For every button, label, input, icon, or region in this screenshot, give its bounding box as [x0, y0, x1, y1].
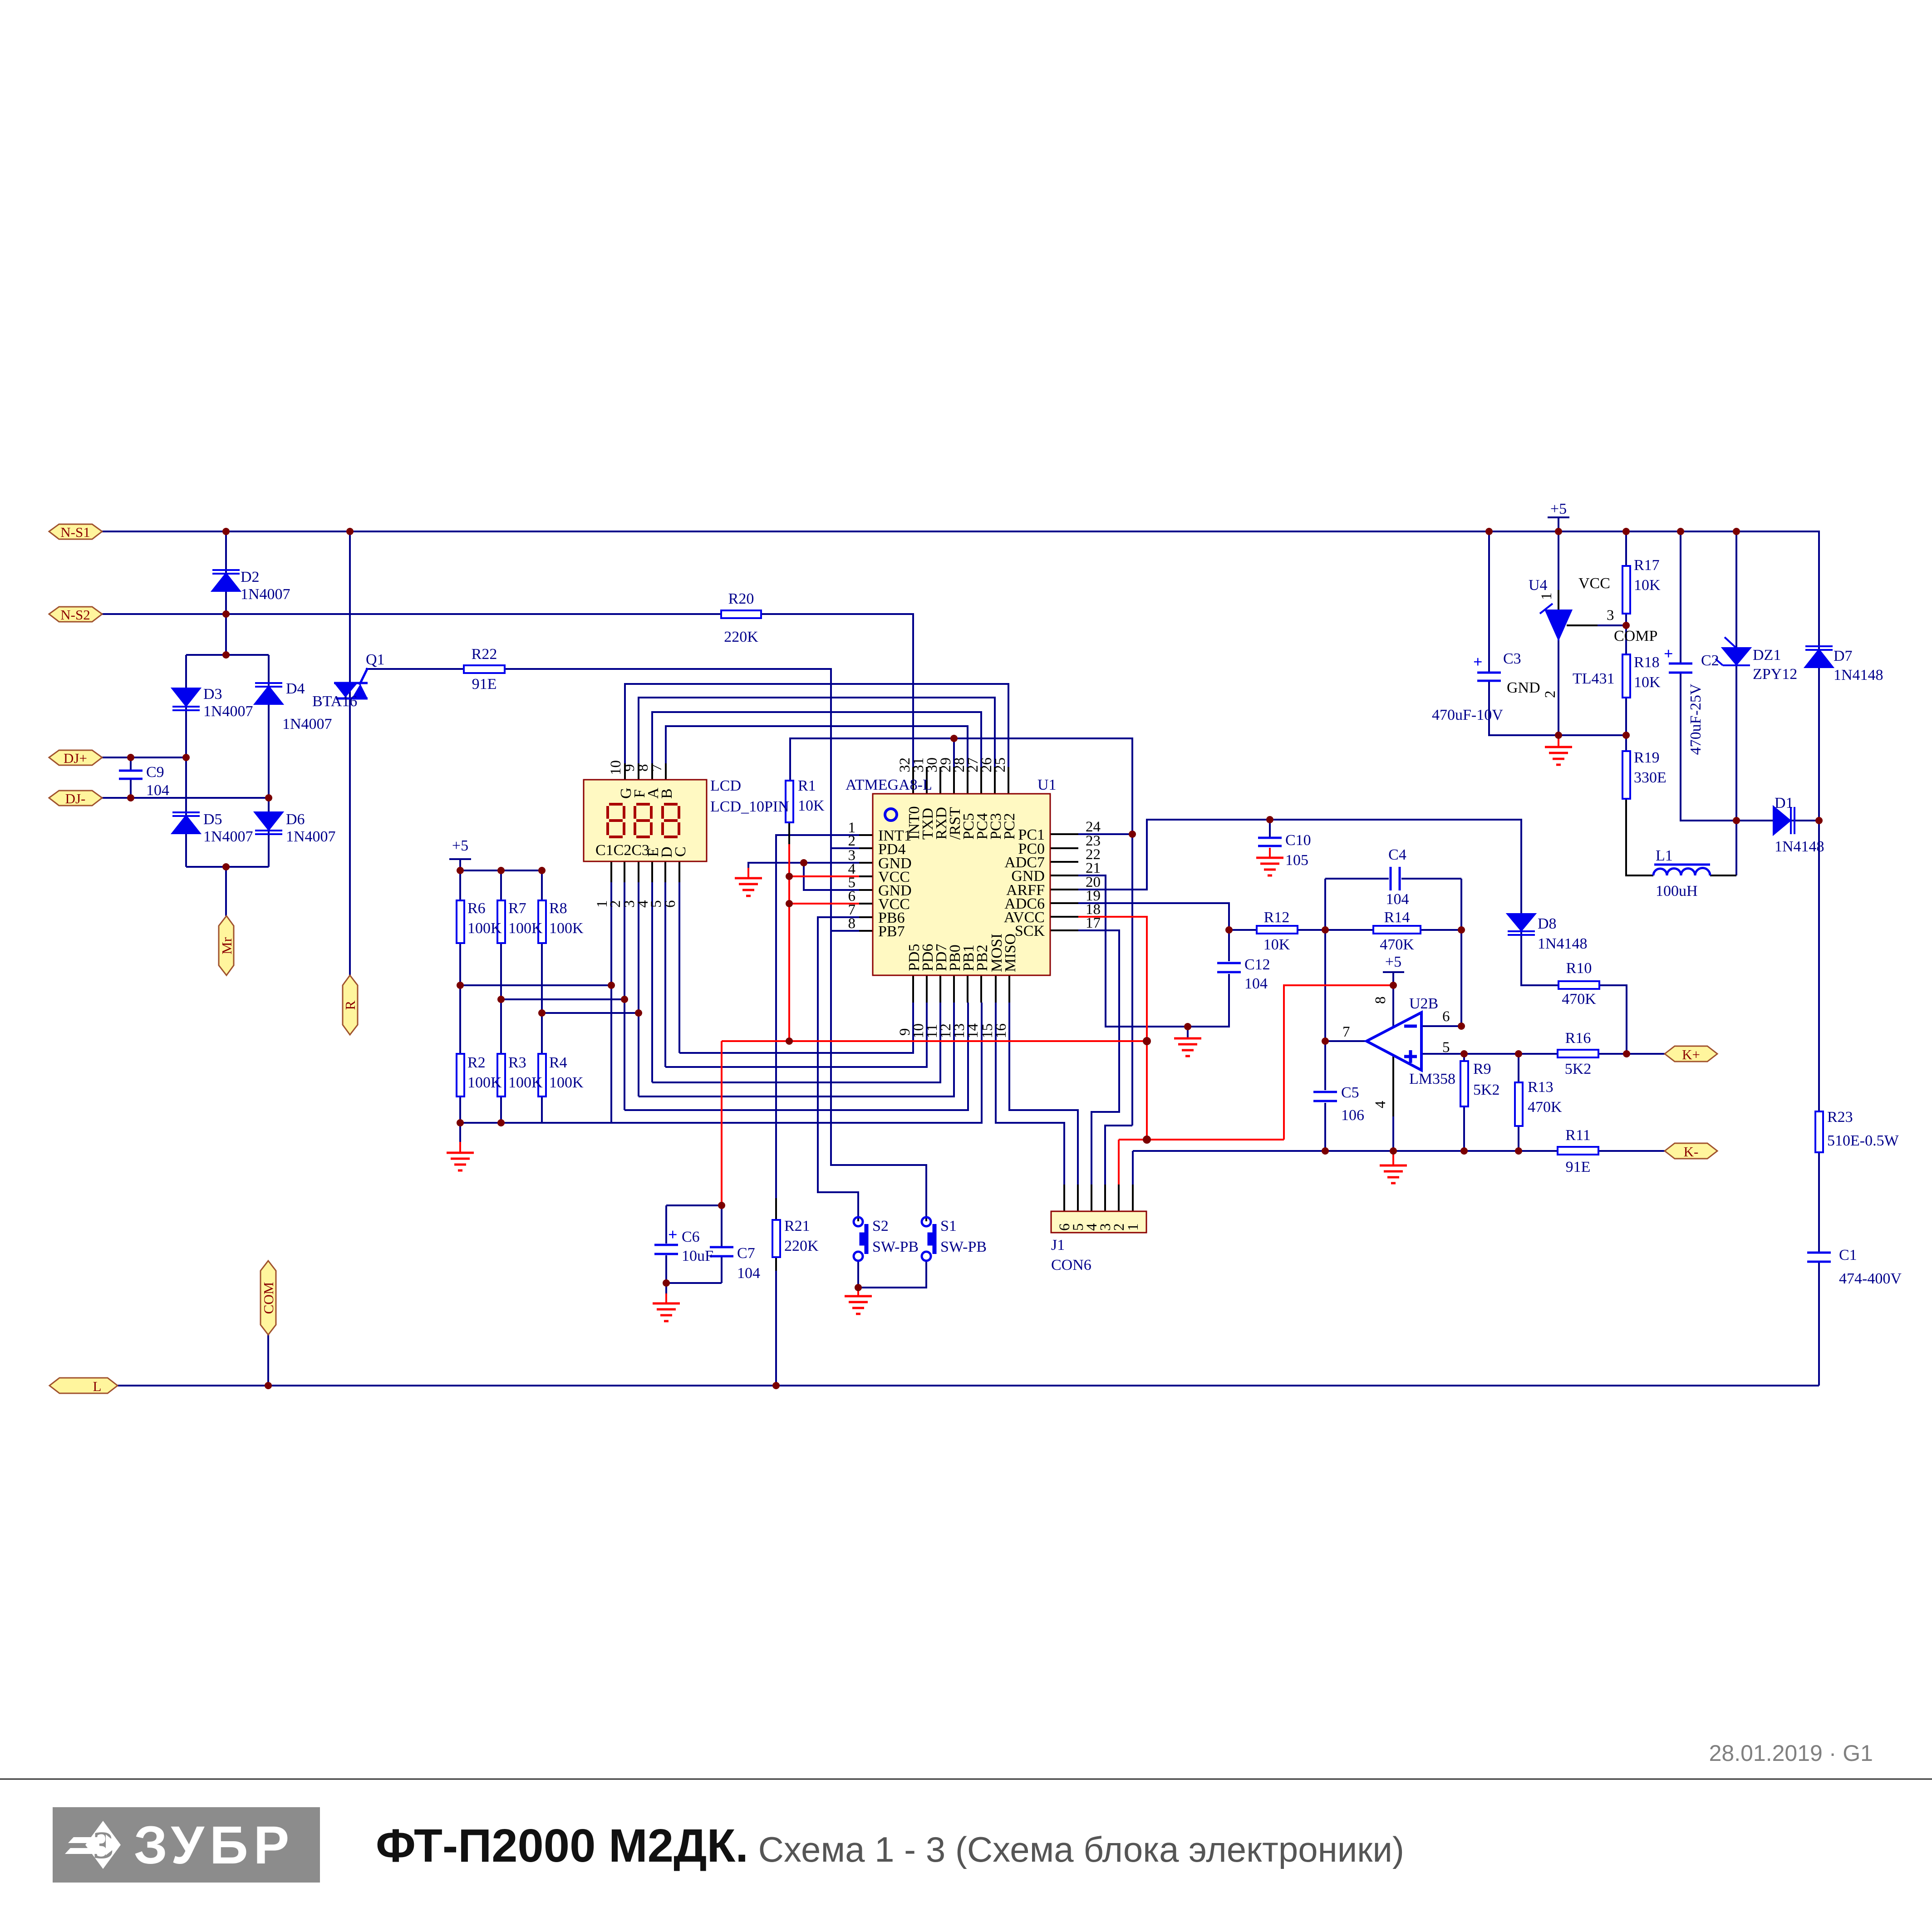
svg-text:R4: R4 [549, 1054, 567, 1071]
svg-text:1N4007: 1N4007 [282, 716, 332, 732]
svg-text:+5: +5 [1385, 954, 1401, 970]
svg-text:100K: 100K [467, 920, 502, 937]
svg-text:DJ+: DJ+ [64, 750, 87, 766]
svg-text:5K2: 5K2 [1473, 1082, 1500, 1098]
svg-text:1N4007: 1N4007 [203, 828, 253, 845]
svg-text:10K: 10K [1634, 577, 1661, 594]
svg-text:K-: K- [1684, 1144, 1699, 1160]
svg-text:104: 104 [737, 1265, 760, 1282]
svg-text:25: 25 [992, 757, 1008, 772]
svg-text:D4: D4 [286, 680, 305, 697]
svg-text:ЗУБР: ЗУБР [134, 1815, 295, 1875]
svg-text:PB7: PB7 [878, 923, 905, 940]
svg-text:470uF-25V: 470uF-25V [1687, 683, 1704, 755]
svg-text:8: 8 [1372, 997, 1389, 1004]
svg-text:R16: R16 [1565, 1030, 1591, 1047]
svg-text:Q1: Q1 [366, 651, 385, 668]
svg-text:N-S2: N-S2 [60, 607, 90, 623]
svg-text:3: 3 [1607, 607, 1614, 624]
svg-text:R2: R2 [467, 1054, 486, 1071]
svg-text:106: 106 [1341, 1107, 1364, 1124]
svg-text:D1: D1 [1775, 795, 1794, 811]
svg-text:R12: R12 [1264, 909, 1290, 926]
svg-text:470K: 470K [1528, 1099, 1562, 1116]
svg-text:510E-0.5W: 510E-0.5W [1827, 1132, 1899, 1149]
svg-text:+: + [1664, 644, 1673, 663]
svg-text:R14: R14 [1384, 909, 1410, 926]
svg-text:100K: 100K [549, 1074, 584, 1091]
svg-text:91E: 91E [1566, 1159, 1591, 1175]
svg-text:100K: 100K [508, 920, 543, 937]
svg-text:5: 5 [1442, 1039, 1450, 1056]
svg-text:L1: L1 [1656, 847, 1673, 864]
svg-text:C6: C6 [682, 1229, 700, 1245]
svg-text:10K: 10K [1263, 936, 1290, 953]
svg-text:2: 2 [1542, 691, 1558, 698]
svg-text:105: 105 [1285, 852, 1308, 869]
svg-text:470uF-10V: 470uF-10V [1432, 707, 1503, 723]
svg-text:D5: D5 [203, 811, 222, 828]
svg-text:BTA16: BTA16 [312, 693, 357, 710]
svg-text:C10: C10 [1285, 832, 1311, 849]
svg-text:R9: R9 [1473, 1061, 1491, 1077]
svg-text:C1: C1 [1839, 1247, 1857, 1263]
svg-text:10K: 10K [1634, 674, 1661, 691]
svg-text:104: 104 [146, 782, 169, 799]
svg-text:S1: S1 [940, 1218, 957, 1234]
svg-text:C3: C3 [1503, 650, 1521, 667]
svg-text:100K: 100K [467, 1074, 502, 1091]
svg-text:U2B: U2B [1409, 995, 1438, 1012]
svg-text:B: B [659, 788, 675, 799]
svg-text:220K: 220K [724, 629, 758, 645]
svg-text:D8: D8 [1538, 915, 1557, 932]
svg-text:U4: U4 [1529, 577, 1548, 594]
svg-text:C12: C12 [1244, 956, 1270, 973]
svg-text:100K: 100K [549, 920, 584, 937]
svg-text:LCD: LCD [710, 777, 741, 794]
svg-text:1N4007: 1N4007 [203, 703, 253, 720]
svg-text:+: + [668, 1225, 678, 1244]
svg-text:7: 7 [1342, 1024, 1350, 1040]
svg-text:17: 17 [1086, 915, 1101, 931]
svg-text:COMP: COMP [1614, 628, 1657, 644]
svg-text:C5: C5 [1341, 1084, 1359, 1101]
svg-text:Mr: Mr [219, 937, 235, 954]
svg-text:+: + [1473, 653, 1483, 671]
svg-text:16: 16 [993, 1023, 1009, 1038]
svg-text:CON6: CON6 [1051, 1257, 1091, 1273]
svg-text:1N4007: 1N4007 [286, 828, 336, 845]
svg-text:N-S1: N-S1 [60, 524, 90, 540]
svg-text:1N4007: 1N4007 [241, 586, 290, 603]
svg-text:R17: R17 [1634, 557, 1660, 574]
svg-text:R21: R21 [784, 1218, 810, 1234]
svg-text:220K: 220K [784, 1238, 819, 1254]
svg-text:10K: 10K [798, 797, 825, 814]
svg-text:C9: C9 [146, 764, 164, 781]
svg-text:R8: R8 [549, 900, 567, 917]
svg-text:6: 6 [1442, 1008, 1450, 1025]
svg-text:TL431: TL431 [1573, 670, 1615, 687]
svg-text:PC2: PC2 [1001, 813, 1018, 840]
svg-text:1N4148: 1N4148 [1538, 935, 1588, 952]
svg-text:L: L [93, 1378, 102, 1394]
svg-text:104: 104 [1386, 891, 1409, 908]
svg-text:U1: U1 [1037, 777, 1057, 793]
svg-text:D2: D2 [241, 569, 260, 585]
svg-text:LCD_10PIN: LCD_10PIN [710, 798, 789, 815]
svg-text:14: 14 [965, 1023, 981, 1038]
svg-text:1: 1 [1539, 593, 1555, 600]
svg-text:100K: 100K [508, 1074, 543, 1091]
svg-text:R22: R22 [472, 646, 497, 663]
svg-text:7: 7 [649, 764, 665, 772]
svg-text:GND: GND [1507, 679, 1540, 696]
svg-text:1N4148: 1N4148 [1775, 838, 1824, 855]
svg-text:R23: R23 [1827, 1109, 1853, 1126]
svg-text:+5: +5 [452, 837, 468, 854]
svg-text:5K2: 5K2 [1565, 1061, 1592, 1077]
svg-text:474-400V: 474-400V [1839, 1270, 1902, 1287]
svg-text:R7: R7 [508, 900, 526, 917]
svg-text:1: 1 [1125, 1224, 1141, 1231]
svg-text:C4: C4 [1388, 846, 1406, 863]
svg-text:C: C [672, 846, 689, 857]
svg-text:28.01.2019 · G1: 28.01.2019 · G1 [1709, 1740, 1873, 1766]
svg-text:R3: R3 [508, 1054, 526, 1071]
svg-text:100uH: 100uH [1656, 883, 1698, 900]
svg-text:COM: COM [261, 1282, 276, 1314]
svg-text:6: 6 [662, 900, 678, 908]
svg-text:2: 2 [848, 833, 856, 849]
svg-text:SCK: SCK [1015, 923, 1045, 939]
svg-text:C1C2C3: C1C2C3 [595, 842, 649, 859]
svg-text:330E: 330E [1634, 769, 1667, 786]
svg-text:D6: D6 [286, 811, 305, 828]
svg-text:+5: +5 [1550, 501, 1567, 517]
svg-text:SW-PB: SW-PB [940, 1239, 987, 1255]
svg-text:4: 4 [1372, 1101, 1389, 1109]
svg-text:R18: R18 [1634, 654, 1660, 671]
svg-text:104: 104 [1244, 975, 1268, 992]
svg-text:10uF: 10uF [682, 1248, 713, 1264]
svg-text:R: R [342, 1000, 358, 1010]
svg-text:470K: 470K [1562, 991, 1596, 1008]
svg-text:LM358: LM358 [1409, 1071, 1455, 1087]
svg-text:R6: R6 [467, 900, 486, 917]
svg-text:D7: D7 [1834, 648, 1853, 664]
svg-text:R1: R1 [798, 777, 816, 794]
svg-text:S2: S2 [872, 1218, 889, 1234]
svg-text:C2: C2 [1701, 652, 1719, 669]
svg-text:DJ-: DJ- [65, 791, 86, 806]
svg-text:D3: D3 [203, 686, 222, 703]
svg-text:ZPY12: ZPY12 [1753, 666, 1797, 683]
svg-text:91E: 91E [472, 676, 497, 693]
svg-text:R10: R10 [1566, 960, 1592, 977]
svg-text:470K: 470K [1380, 936, 1414, 953]
svg-text:J1: J1 [1051, 1237, 1065, 1254]
svg-text:8: 8 [848, 915, 856, 932]
svg-text:R11: R11 [1565, 1127, 1590, 1144]
svg-text:VCC: VCC [1578, 575, 1610, 592]
svg-text:C7: C7 [737, 1245, 755, 1262]
svg-text:1N4148: 1N4148 [1834, 667, 1883, 683]
svg-text:ATMEGA8-L: ATMEGA8-L [846, 777, 932, 793]
svg-text:K+: K+ [1682, 1047, 1700, 1062]
svg-text:DZ1: DZ1 [1753, 647, 1781, 664]
svg-text:SW-PB: SW-PB [872, 1239, 919, 1255]
svg-text:MISO: MISO [1002, 934, 1019, 972]
svg-text:R13: R13 [1528, 1079, 1553, 1096]
svg-text:R20: R20 [728, 590, 754, 607]
svg-text:R19: R19 [1634, 749, 1660, 766]
